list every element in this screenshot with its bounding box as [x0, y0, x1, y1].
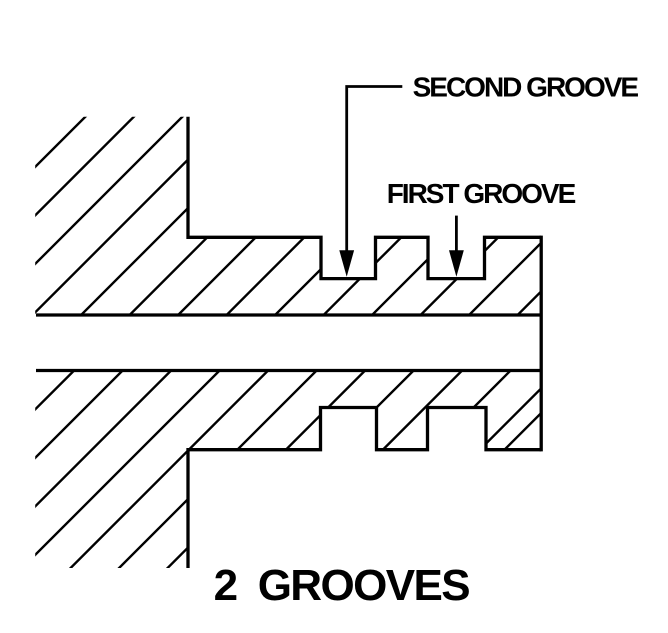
- svg-text:GROOVES: GROOVES: [258, 561, 470, 610]
- svg-text:2: 2: [214, 561, 238, 610]
- svg-text:SECOND GROOVE: SECOND GROOVE: [413, 72, 639, 103]
- svg-text:FIRST GROOVE: FIRST GROOVE: [387, 178, 576, 209]
